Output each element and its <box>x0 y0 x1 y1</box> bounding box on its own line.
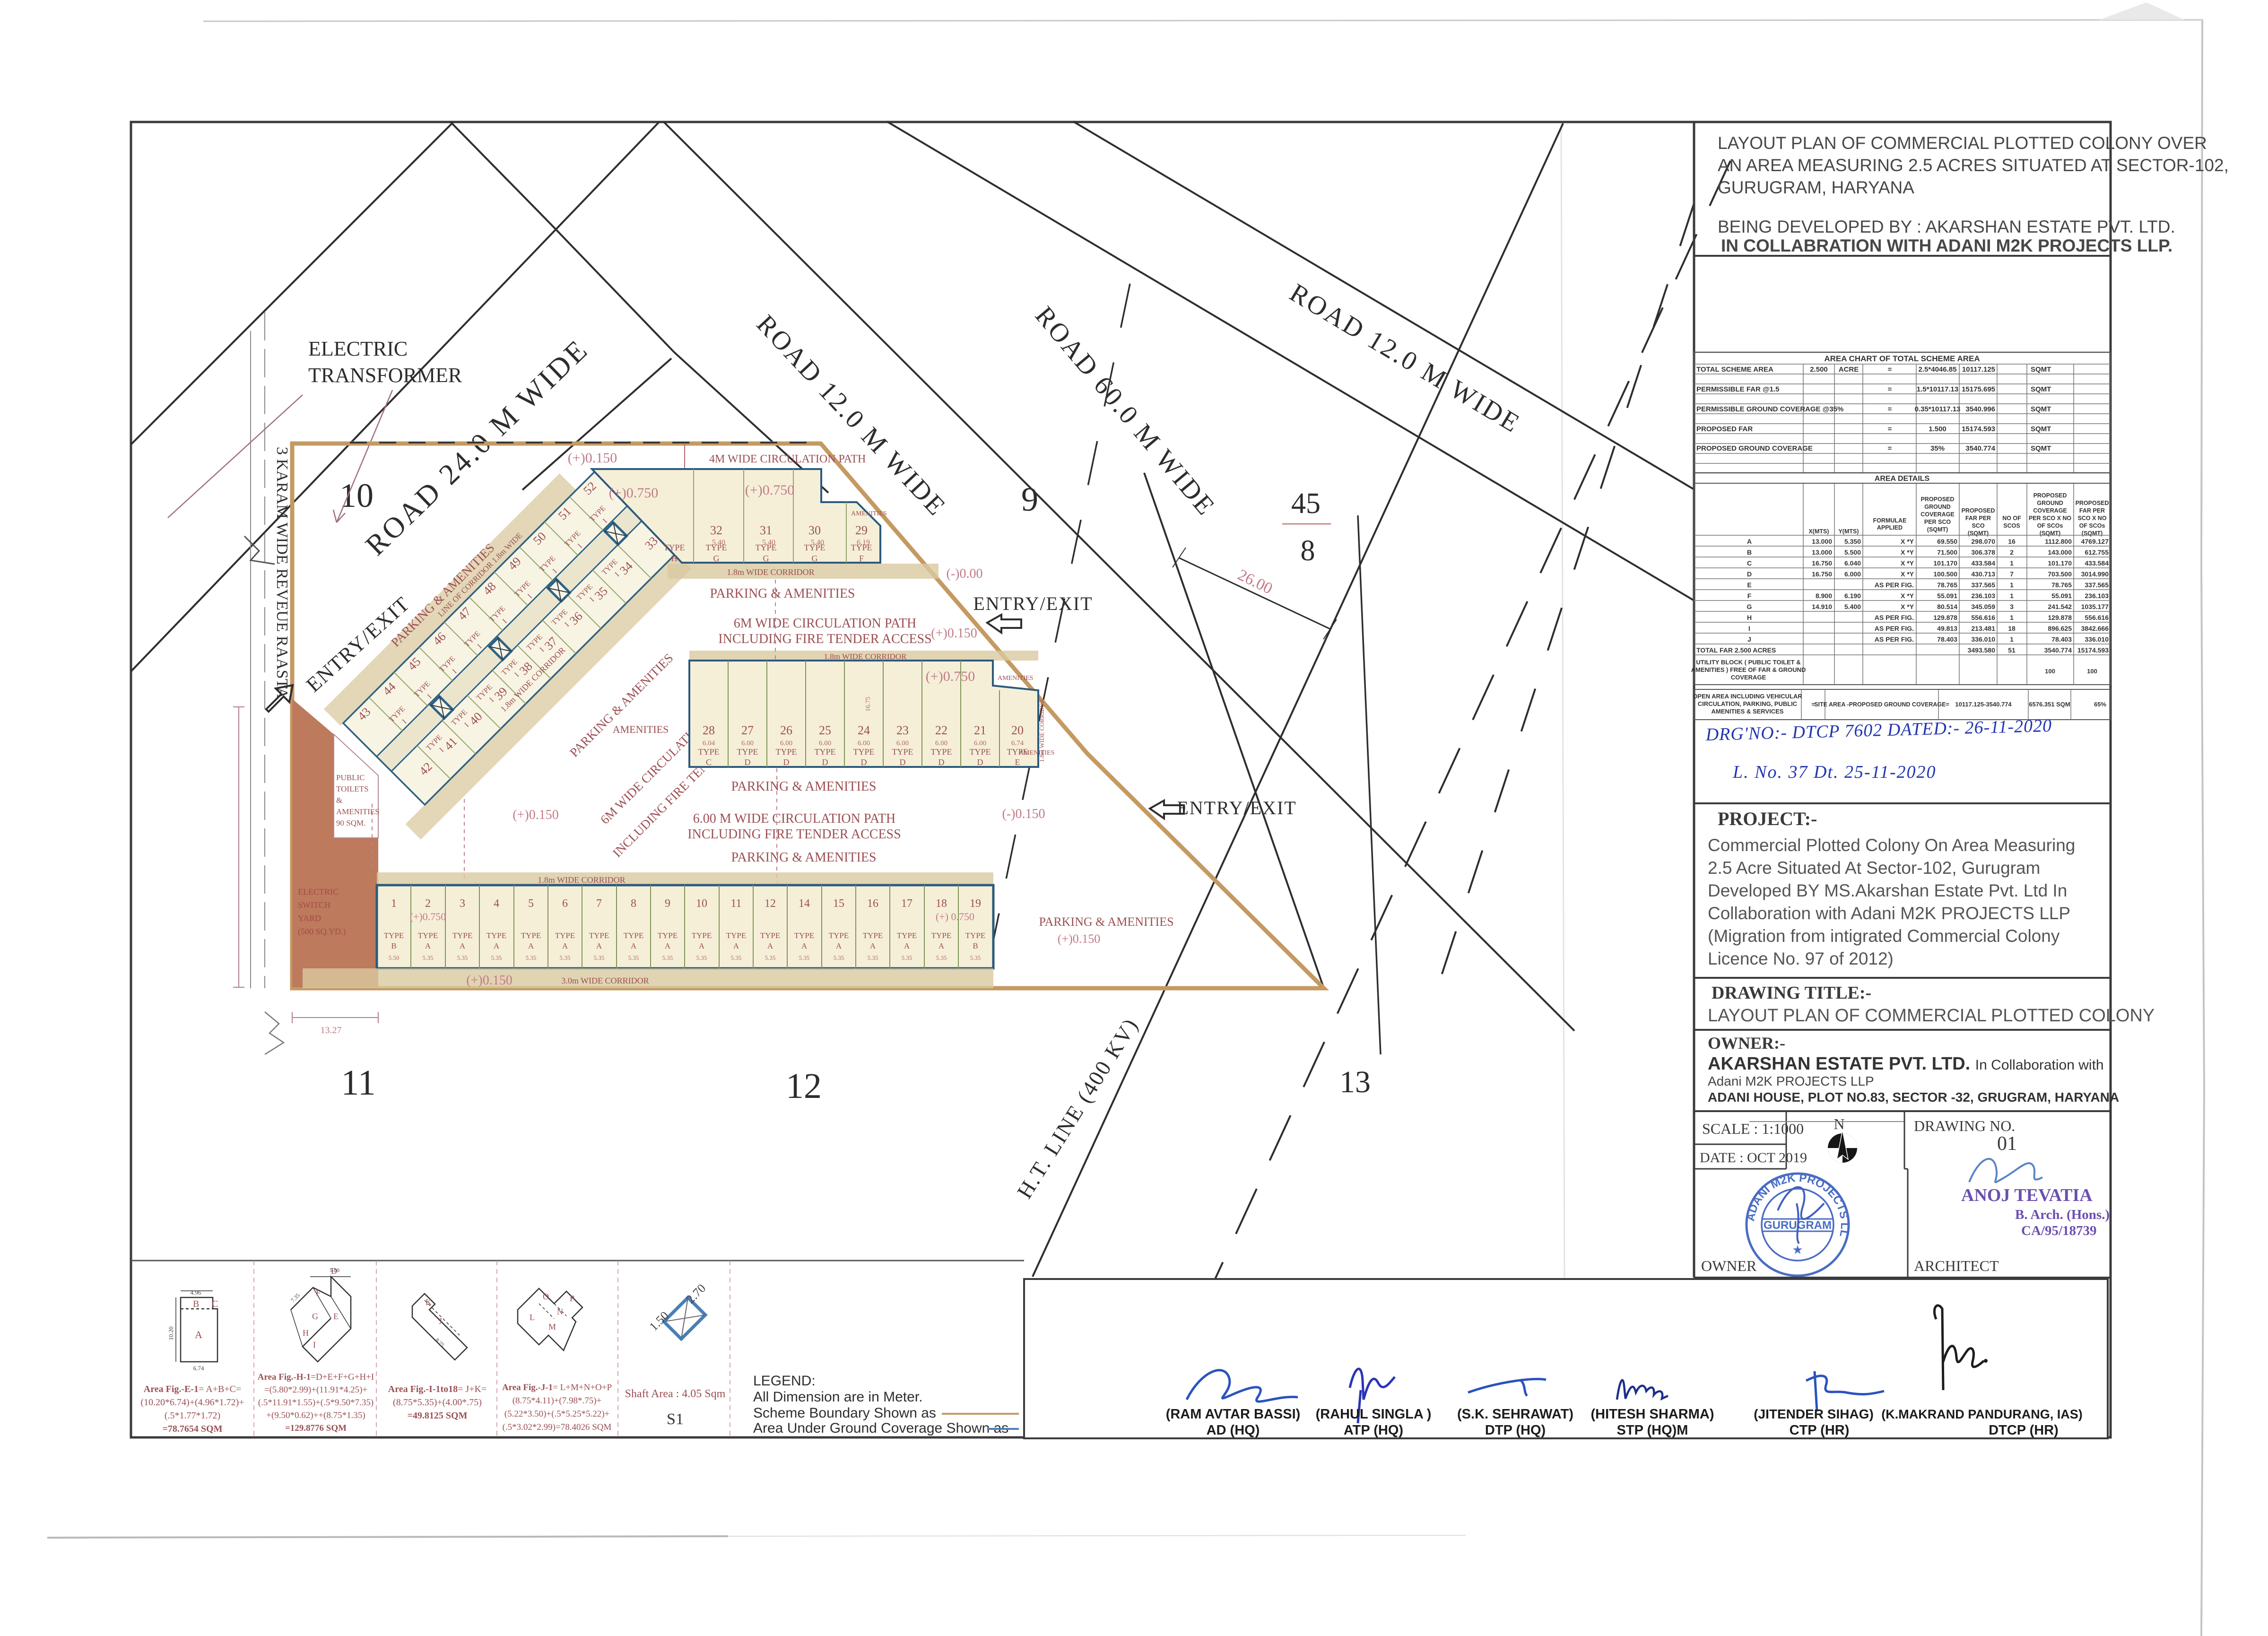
svg-text:IN COLLABRATION WITH ADANI M2K: IN COLLABRATION WITH ADANI M2K PROJECTS … <box>1721 236 2172 255</box>
svg-text:15174.593: 15174.593 <box>1962 425 1995 433</box>
svg-text:OF SCOs: OF SCOs <box>2037 522 2063 529</box>
svg-text:5: 5 <box>528 897 534 910</box>
svg-text:5.350: 5.350 <box>1844 538 1861 545</box>
svg-text:L. No. 37 Dt. 25-11-2020: L. No. 37 Dt. 25-11-2020 <box>1732 762 1936 782</box>
svg-text:D: D <box>822 757 828 767</box>
svg-text:7: 7 <box>596 897 602 910</box>
svg-text:306.378: 306.378 <box>1971 548 1995 556</box>
svg-text:55.091: 55.091 <box>2051 592 2072 600</box>
svg-text:26: 26 <box>780 723 792 737</box>
svg-text:13.000: 13.000 <box>1812 538 1832 545</box>
svg-text:433.584: 433.584 <box>1971 559 1995 567</box>
svg-text:(+)0.150: (+)0.150 <box>1058 932 1100 946</box>
svg-text:=: = <box>1888 405 1892 413</box>
svg-text:23: 23 <box>896 723 909 737</box>
svg-text:TYPE: TYPE <box>804 543 826 552</box>
svg-text:35%: 35% <box>1930 444 1945 453</box>
svg-text:B: B <box>1747 548 1752 556</box>
svg-text:ARCHITECT: ARCHITECT <box>1914 1257 1999 1274</box>
svg-text:PROPOSED: PROPOSED <box>1921 496 1955 503</box>
svg-text:(RAHUL SINGLA ): (RAHUL SINGLA ) <box>1316 1407 1432 1422</box>
svg-text:5.35: 5.35 <box>970 954 981 961</box>
svg-text:F: F <box>1747 592 1752 600</box>
svg-text:C: C <box>1747 559 1752 567</box>
svg-text:COVERAGE: COVERAGE <box>1920 511 1955 518</box>
svg-text:PARKING & AMENITIES: PARKING & AMENITIES <box>710 586 855 601</box>
svg-text:B. Arch. (Hons.): B. Arch. (Hons.) <box>2015 1207 2110 1222</box>
svg-text:6.00: 6.00 <box>741 740 754 747</box>
svg-text:(+)0.150: (+)0.150 <box>568 450 617 466</box>
svg-text:TYPE: TYPE <box>815 747 836 757</box>
svg-text:336.010: 336.010 <box>2085 635 2109 643</box>
svg-text:O: O <box>543 1292 549 1301</box>
svg-text:=: = <box>1888 444 1892 453</box>
svg-text:X *Y: X *Y <box>1901 603 1914 610</box>
svg-text:5.35: 5.35 <box>731 954 742 961</box>
svg-text:5.35: 5.35 <box>526 954 537 961</box>
svg-text:1.8m WIDE CORRIDOR: 1.8m WIDE CORRIDOR <box>727 567 814 577</box>
svg-text:AMENITIES & SERVICES: AMENITIES & SERVICES <box>1712 708 1784 715</box>
svg-text:APPLIED: APPLIED <box>1877 524 1903 531</box>
svg-text:D: D <box>1747 570 1752 578</box>
svg-text:6.000: 6.000 <box>1844 570 1861 578</box>
svg-text:7: 7 <box>2010 570 2014 578</box>
svg-text:X(MTS): X(MTS) <box>1808 528 1829 535</box>
svg-text:101.170: 101.170 <box>2048 559 2072 567</box>
svg-text:14: 14 <box>799 897 810 910</box>
svg-text:1: 1 <box>2010 559 2014 567</box>
svg-text:5.35: 5.35 <box>662 954 673 961</box>
svg-text:TYPE: TYPE <box>853 747 875 757</box>
svg-text:5.50: 5.50 <box>389 954 400 961</box>
svg-text:G: G <box>312 1312 318 1321</box>
svg-text:B: B <box>391 941 396 950</box>
svg-text:20: 20 <box>1011 723 1024 737</box>
svg-text:9: 9 <box>1021 480 1038 518</box>
svg-text:5.35: 5.35 <box>902 954 912 961</box>
svg-text:4769.127: 4769.127 <box>2081 538 2109 545</box>
svg-text:INCLUDING FIRE TENDER ACCESS: INCLUDING FIRE TENDER ACCESS <box>687 827 901 842</box>
svg-text:A: A <box>631 941 637 950</box>
svg-text:+(9.50*0.62)++(8.75*1.35): +(9.50*0.62)++(8.75*1.35) <box>266 1410 365 1420</box>
svg-text:Area Fig.-I-1to18= J+K=: Area Fig.-I-1to18= J+K= <box>388 1384 487 1394</box>
svg-text:FORMULAE: FORMULAE <box>1873 517 1907 524</box>
svg-text:5.35: 5.35 <box>457 954 468 961</box>
svg-text:J: J <box>439 1316 442 1326</box>
svg-text:TYPE: TYPE <box>384 931 404 940</box>
svg-text:AMENITIES: AMENITIES <box>851 510 886 517</box>
svg-text:TOTAL SCHEME AREA: TOTAL SCHEME AREA <box>1696 365 1773 374</box>
svg-text:PROPOSED FAR: PROPOSED FAR <box>1696 425 1753 433</box>
svg-text:2: 2 <box>425 897 431 910</box>
svg-text:45: 45 <box>1291 487 1321 520</box>
svg-text:AKARSHAN ESTATE PVT. LTD. In: AKARSHAN ESTATE PVT. LTD. In Collaborati… <box>1708 1054 2104 1074</box>
svg-text:6: 6 <box>562 897 568 910</box>
svg-text:25: 25 <box>819 723 831 737</box>
svg-text:6.040: 6.040 <box>1844 559 1861 567</box>
svg-text:Licence No. 97 of 2012): Licence No. 97 of 2012) <box>1708 949 1894 968</box>
svg-text:E: E <box>333 1312 339 1321</box>
svg-text:433.584: 433.584 <box>2085 559 2109 567</box>
svg-text:Y(MTS): Y(MTS) <box>1838 528 1859 535</box>
svg-text:TYPE: TYPE <box>760 931 781 940</box>
svg-text:Scheme Boundary Shown as: Scheme Boundary Shown as <box>753 1405 936 1421</box>
svg-text:15: 15 <box>833 897 844 910</box>
svg-text:=129.8776 SQM: =129.8776 SQM <box>285 1423 347 1433</box>
svg-text:TYPE: TYPE <box>706 543 727 552</box>
svg-text:24: 24 <box>858 723 870 737</box>
svg-text:=78.7654 SQM: =78.7654 SQM <box>163 1424 223 1434</box>
svg-text:X *Y: X *Y <box>1901 548 1914 556</box>
svg-text:All Dimension are in Meter.: All Dimension are in Meter. <box>753 1389 922 1405</box>
svg-text:3493.580: 3493.580 <box>1968 646 1996 654</box>
svg-text:TYPE: TYPE <box>726 931 747 940</box>
svg-text:I: I <box>1748 625 1750 632</box>
svg-text:AMENITIES: AMENITIES <box>613 723 669 735</box>
svg-text:A: A <box>767 941 773 950</box>
svg-text:6.190: 6.190 <box>1844 592 1861 600</box>
svg-text:5.35: 5.35 <box>423 954 434 961</box>
svg-text:TYPE: TYPE <box>698 747 720 757</box>
svg-text:YARD: YARD <box>298 914 321 923</box>
svg-text:A: A <box>460 941 466 950</box>
svg-text:6.74: 6.74 <box>1011 740 1024 747</box>
svg-text:4: 4 <box>494 897 499 910</box>
svg-text:4.96: 4.96 <box>191 1289 201 1296</box>
svg-text:G: G <box>812 554 818 563</box>
svg-text:CA/95/18739: CA/95/18739 <box>2021 1223 2097 1238</box>
svg-text:22: 22 <box>935 723 947 737</box>
svg-text:6.00: 6.00 <box>896 740 909 747</box>
svg-text:A: A <box>1747 538 1752 545</box>
svg-text:SQMT: SQMT <box>2031 425 2051 433</box>
svg-text:3540.774: 3540.774 <box>1965 444 1995 453</box>
svg-text:10.20: 10.20 <box>167 1326 174 1340</box>
svg-text:DRAWING NO.: DRAWING NO. <box>1914 1117 2015 1134</box>
svg-text:336.010: 336.010 <box>1971 635 1995 643</box>
svg-text:11: 11 <box>730 897 741 910</box>
svg-text:896.625: 896.625 <box>2048 625 2072 632</box>
svg-text:2.5 Acre Situated At Sector-10: 2.5 Acre Situated At Sector-102, Gurugra… <box>1708 858 2040 878</box>
svg-text:AS PER FIG.: AS PER FIG. <box>1875 635 1914 643</box>
svg-text:ANOJ TEVATIA: ANOJ TEVATIA <box>1961 1185 2093 1205</box>
svg-text:(+)0.150: (+)0.150 <box>513 808 558 822</box>
svg-text:DRAWING TITLE:-: DRAWING TITLE:- <box>1712 983 1871 1003</box>
svg-text:30: 30 <box>808 523 821 537</box>
svg-text:337.565: 337.565 <box>2085 581 2109 589</box>
svg-text:AS PER FIG.: AS PER FIG. <box>1875 581 1914 589</box>
svg-text:E: E <box>1015 757 1020 767</box>
svg-text:11: 11 <box>341 1063 375 1103</box>
svg-text:AN AREA MEASURING 2.5 ACRES SI: AN AREA MEASURING 2.5 ACRES SITUATED AT … <box>1718 156 2229 175</box>
svg-text:01: 01 <box>1997 1133 2017 1155</box>
svg-text:6.00: 6.00 <box>935 740 947 747</box>
svg-text:1112.800: 1112.800 <box>2045 538 2072 545</box>
svg-text:D: D <box>977 757 983 767</box>
svg-text:SCO X NO: SCO X NO <box>2077 515 2106 522</box>
svg-text:4M WIDE CIRCULATION PATH: 4M WIDE CIRCULATION PATH <box>709 453 866 465</box>
svg-text:80.514: 80.514 <box>1937 603 1957 610</box>
svg-text:X *Y: X *Y <box>1901 592 1914 600</box>
svg-text:PROPOSED: PROPOSED <box>2033 492 2067 499</box>
svg-text:1035.177: 1035.177 <box>2081 603 2109 610</box>
svg-text:B: B <box>973 941 978 950</box>
svg-text:90 SQM.: 90 SQM. <box>336 818 365 827</box>
svg-text:PROPOSED: PROPOSED <box>1962 507 1995 514</box>
svg-text:3014.990: 3014.990 <box>2081 570 2109 578</box>
svg-text:F: F <box>859 554 864 563</box>
svg-text:D: D <box>900 757 906 767</box>
svg-text:6.00: 6.00 <box>858 740 870 747</box>
svg-text:OWNER: OWNER <box>1701 1257 1757 1274</box>
svg-text:8.900: 8.900 <box>1816 592 1832 600</box>
svg-text:16: 16 <box>2008 538 2016 545</box>
svg-text:(JITENDER SIHAG): (JITENDER SIHAG) <box>1754 1407 1874 1421</box>
svg-text:L: L <box>530 1313 535 1322</box>
svg-text:A: A <box>836 941 842 950</box>
svg-text:TYPE: TYPE <box>863 931 883 940</box>
svg-text:1: 1 <box>2010 635 2014 643</box>
svg-text:16.750: 16.750 <box>1812 559 1832 567</box>
svg-text:143.000: 143.000 <box>2048 548 2072 556</box>
svg-text:TYPE: TYPE <box>555 931 575 940</box>
svg-text:5.80: 5.80 <box>330 1267 339 1273</box>
svg-text:G: G <box>1747 603 1752 610</box>
svg-text:213.481: 213.481 <box>1971 625 1995 632</box>
svg-text:(SQMT): (SQMT) <box>2040 530 2060 537</box>
svg-text:A: A <box>801 941 808 950</box>
svg-text:A: A <box>528 941 534 950</box>
svg-text:6.00: 6.00 <box>819 740 831 747</box>
svg-text:69.550: 69.550 <box>1937 538 1957 545</box>
svg-text:129.878: 129.878 <box>1933 614 1957 621</box>
svg-text:Adani M2K PROJECTS LLP: Adani M2K PROJECTS LLP <box>1708 1074 1874 1088</box>
svg-text:5.35: 5.35 <box>765 954 776 961</box>
svg-text:78.403: 78.403 <box>2051 635 2072 643</box>
svg-text:AS PER FIG.: AS PER FIG. <box>1875 625 1914 632</box>
svg-text:K: K <box>426 1297 432 1307</box>
svg-text:32: 32 <box>710 523 722 537</box>
svg-text:1.5*10117.13: 1.5*10117.13 <box>1917 385 1958 393</box>
svg-text:F: F <box>316 1288 321 1297</box>
svg-text:PROPOSED GROUND COVERAGE: PROPOSED GROUND COVERAGE <box>1696 444 1813 453</box>
svg-text:18: 18 <box>2008 625 2016 632</box>
svg-text:3.0m WIDE CORRIDOR: 3.0m WIDE CORRIDOR <box>561 976 649 985</box>
svg-text:(+)0.750: (+)0.750 <box>410 911 446 922</box>
svg-text:(SQMT): (SQMT) <box>1927 526 1948 533</box>
svg-text:101.170: 101.170 <box>1933 559 1957 567</box>
svg-text:PER SCO: PER SCO <box>1924 519 1951 525</box>
svg-text:5.500: 5.500 <box>1844 548 1861 556</box>
svg-text:(K.MAKRAND PANDURANG, IAS): (K.MAKRAND PANDURANG, IAS) <box>1881 1407 2082 1421</box>
svg-text:TYPE: TYPE <box>452 931 473 940</box>
svg-text:100.500: 100.500 <box>1933 570 1957 578</box>
svg-text:49.813: 49.813 <box>1937 625 1957 632</box>
svg-text:129.878: 129.878 <box>2048 614 2072 621</box>
svg-text:236.103: 236.103 <box>1971 592 1995 600</box>
svg-text:ACRE: ACRE <box>1839 365 1859 374</box>
svg-text:D: D <box>745 757 751 767</box>
svg-text:(8.75*5.35)+(4.00*.75): (8.75*5.35)+(4.00*.75) <box>393 1397 482 1408</box>
svg-text:100: 100 <box>2045 668 2055 675</box>
svg-text:TYPE: TYPE <box>970 747 991 757</box>
svg-text:612.755: 612.755 <box>2085 548 2109 556</box>
svg-text:ENTRY/EXIT: ENTRY/EXIT <box>1177 797 1296 818</box>
svg-text:51: 51 <box>2008 646 2016 654</box>
svg-text:N: N <box>1834 1115 1844 1132</box>
svg-text:OF SCOs: OF SCOs <box>2079 522 2105 529</box>
svg-text:A: A <box>195 1329 202 1340</box>
svg-text:Area Fig.-E-1= A+B+C=: Area Fig.-E-1= A+B+C= <box>144 1384 241 1394</box>
svg-text:6.00 M WIDE CIRCULATION PATH: 6.00 M WIDE CIRCULATION PATH <box>693 811 896 826</box>
svg-text:PROJECT:-: PROJECT:- <box>1718 808 1817 829</box>
svg-text:FAR PER: FAR PER <box>2079 507 2105 514</box>
svg-text:X *Y: X *Y <box>1901 570 1914 578</box>
svg-text:10117.125: 10117.125 <box>1962 365 1995 374</box>
svg-text:NO OF: NO OF <box>2002 515 2021 522</box>
svg-text:TYPE: TYPE <box>521 931 541 940</box>
svg-text:15174.593: 15174.593 <box>2077 646 2109 654</box>
svg-text:(-)0.00: (-)0.00 <box>947 566 983 581</box>
svg-text:6.04: 6.04 <box>703 740 715 747</box>
svg-text:TYPE: TYPE <box>794 931 815 940</box>
svg-text:TRANSFORMER: TRANSFORMER <box>308 364 462 387</box>
svg-text:9: 9 <box>665 897 670 910</box>
svg-text:Collaboration with Adani M2K P: Collaboration with Adani M2K PROJECTS LL… <box>1708 904 2070 923</box>
svg-text:A: A <box>562 941 568 950</box>
svg-text:ELECTRIC: ELECTRIC <box>308 337 408 360</box>
svg-text:TYPE: TYPE <box>776 747 797 757</box>
svg-text:430.713: 430.713 <box>1971 570 1995 578</box>
svg-text:D: D <box>938 757 945 767</box>
svg-text:6.00: 6.00 <box>780 740 792 747</box>
svg-text:SQMT: SQMT <box>2031 365 2051 374</box>
svg-text:CTP (HR): CTP (HR) <box>1790 1423 1850 1438</box>
svg-text:BEING DEVELOPED BY : AKARSHAN: BEING DEVELOPED BY : AKARSHAN ESTATE PVT… <box>1718 217 2175 236</box>
svg-text:(RAM AVTAR BASSI): (RAM AVTAR BASSI) <box>1166 1407 1301 1422</box>
svg-text:DATE : OCT 2019: DATE : OCT 2019 <box>1700 1150 1807 1166</box>
svg-text:H: H <box>1747 614 1752 621</box>
svg-text:S1: S1 <box>667 1410 684 1428</box>
svg-text:A: A <box>870 941 876 950</box>
svg-text:8: 8 <box>1301 535 1315 567</box>
svg-text:A: A <box>665 941 671 950</box>
svg-text:ADANI HOUSE, PLOT NO.83, SECTO: ADANI HOUSE, PLOT NO.83, SECTOR -32, GRU… <box>1708 1090 2119 1105</box>
svg-text:OWNER:-: OWNER:- <box>1708 1034 1785 1053</box>
svg-text:16: 16 <box>867 897 878 910</box>
svg-text:AMENITIES: AMENITIES <box>998 675 1033 682</box>
svg-text:345.059: 345.059 <box>1971 603 1995 610</box>
svg-text:(.5*1.77*1.72): (.5*1.77*1.72) <box>165 1410 220 1421</box>
svg-text:TYPE: TYPE <box>418 931 438 940</box>
svg-text:Shaft Area : 4.05 Sqm: Shaft Area : 4.05 Sqm <box>625 1388 726 1400</box>
svg-text:65%: 65% <box>2094 701 2106 708</box>
svg-text:A: A <box>699 941 705 950</box>
svg-text:PARKING & AMENITIES: PARKING & AMENITIES <box>731 779 877 794</box>
svg-text:AD (HQ): AD (HQ) <box>1207 1423 1260 1438</box>
svg-text:28: 28 <box>703 723 715 737</box>
svg-text:10: 10 <box>339 477 374 514</box>
svg-text:78.403: 78.403 <box>1937 635 1957 643</box>
svg-text:TOILETS: TOILETS <box>336 784 369 793</box>
svg-text:31: 31 <box>760 523 772 537</box>
svg-text:3: 3 <box>2010 603 2014 610</box>
svg-text:LAYOUT PLAN OF COMMERCIAL PLOT: LAYOUT PLAN OF COMMERCIAL PLOTTED COLONY <box>1708 1006 2155 1026</box>
svg-text:TYPE: TYPE <box>658 931 678 940</box>
svg-text:(Migration from intigrated Com: (Migration from intigrated Commercial Co… <box>1708 926 2060 946</box>
svg-text:(S.K. SEHRAWAT): (S.K. SEHRAWAT) <box>1457 1407 1573 1422</box>
svg-text:TYPE: TYPE <box>692 931 712 940</box>
svg-text:556.616: 556.616 <box>1971 614 1995 621</box>
svg-text:I: I <box>313 1340 316 1349</box>
svg-text:(10.20*6.74)+(4.96*1.72)+: (10.20*6.74)+(4.96*1.72)+ <box>140 1397 244 1408</box>
svg-text:Area Fig.-J-1= L+M+N+O+P: Area Fig.-J-1= L+M+N+O+P <box>502 1383 612 1392</box>
svg-text:1.500: 1.500 <box>1929 425 1946 433</box>
svg-text:5.35: 5.35 <box>560 954 571 961</box>
svg-text:GURUGRAM, HARYANA: GURUGRAM, HARYANA <box>1718 178 1914 197</box>
svg-text:0.35*10117.13: 0.35*10117.13 <box>1915 405 1961 413</box>
svg-text:STP (HQ)M: STP (HQ)M <box>1617 1423 1688 1438</box>
svg-text:5.35: 5.35 <box>868 954 878 961</box>
svg-text:=: = <box>1888 385 1892 393</box>
svg-text:556.616: 556.616 <box>2085 614 2109 621</box>
svg-text:AREA DETAILS: AREA DETAILS <box>1875 475 1930 483</box>
svg-text:E: E <box>1747 581 1751 589</box>
svg-text:12: 12 <box>786 1066 822 1106</box>
svg-text:SQMT: SQMT <box>2031 405 2051 413</box>
svg-text:5.35: 5.35 <box>491 954 502 961</box>
svg-text:=(5.80*2.99)+(11.91*4.25)+: =(5.80*2.99)+(11.91*4.25)+ <box>264 1385 367 1395</box>
svg-text:COVERAGE: COVERAGE <box>2033 507 2067 514</box>
svg-text:A: A <box>494 941 500 950</box>
svg-text:(8.75*4.11)+(7.98*.75)+: (8.75*4.11)+(7.98*.75)+ <box>513 1396 602 1406</box>
svg-text:TYPE: TYPE <box>897 931 917 940</box>
svg-text:PERMISSIBLE FAR @1.5: PERMISSIBLE FAR @1.5 <box>1696 385 1780 393</box>
svg-text:703.500: 703.500 <box>2048 570 2072 578</box>
svg-text:INCLUDING FIRE TENDER ACCESS: INCLUDING FIRE TENDER ACCESS <box>718 632 931 646</box>
svg-text:TYPE: TYPE <box>931 931 952 940</box>
svg-text:C: C <box>212 1299 218 1309</box>
svg-text:GROUND: GROUND <box>1924 504 1951 510</box>
svg-text:1.8m WIDE CORRIDOR: 1.8m WIDE CORRIDOR <box>538 875 625 885</box>
svg-text:(+)0.750: (+)0.750 <box>609 485 658 501</box>
svg-text:PER SCO X NO: PER SCO X NO <box>2029 515 2072 522</box>
svg-text:GROUND: GROUND <box>2037 500 2063 506</box>
svg-text:(SQMT): (SQMT) <box>1968 530 1989 537</box>
svg-text:TYPE: TYPE <box>664 543 685 552</box>
svg-text:13.27: 13.27 <box>321 1025 342 1036</box>
svg-text:6576.351 SQM: 6576.351 SQM <box>2029 701 2070 708</box>
svg-text:78.765: 78.765 <box>1937 581 1957 589</box>
svg-text:J: J <box>1747 635 1751 643</box>
svg-text:(+)0.150: (+)0.150 <box>931 626 977 641</box>
svg-text:SITE AREA -PROPOSED GROUND COV: SITE AREA -PROPOSED GROUND COVERAGE= <box>1814 701 1949 708</box>
svg-text:1: 1 <box>391 897 397 910</box>
svg-text:D: D <box>783 757 790 767</box>
svg-text:PROPOSED: PROPOSED <box>2076 500 2109 506</box>
svg-text:5.35: 5.35 <box>594 954 605 961</box>
svg-text:5.400: 5.400 <box>1844 603 1861 610</box>
svg-text:H: H <box>671 554 678 563</box>
svg-text:PERMISSIBLE GROUND COVERAGE @3: PERMISSIBLE GROUND COVERAGE @35% <box>1696 405 1843 413</box>
svg-text:18: 18 <box>936 897 947 910</box>
svg-text:12: 12 <box>765 897 776 910</box>
svg-text:236.103: 236.103 <box>2085 592 2109 600</box>
svg-text:(.5*3.02*2.99)=78.4026 SQM: (.5*3.02*2.99)=78.4026 SQM <box>503 1422 612 1432</box>
svg-text:P: P <box>570 1294 574 1303</box>
svg-text:N: N <box>557 1307 563 1316</box>
svg-text:★: ★ <box>1792 1243 1803 1257</box>
